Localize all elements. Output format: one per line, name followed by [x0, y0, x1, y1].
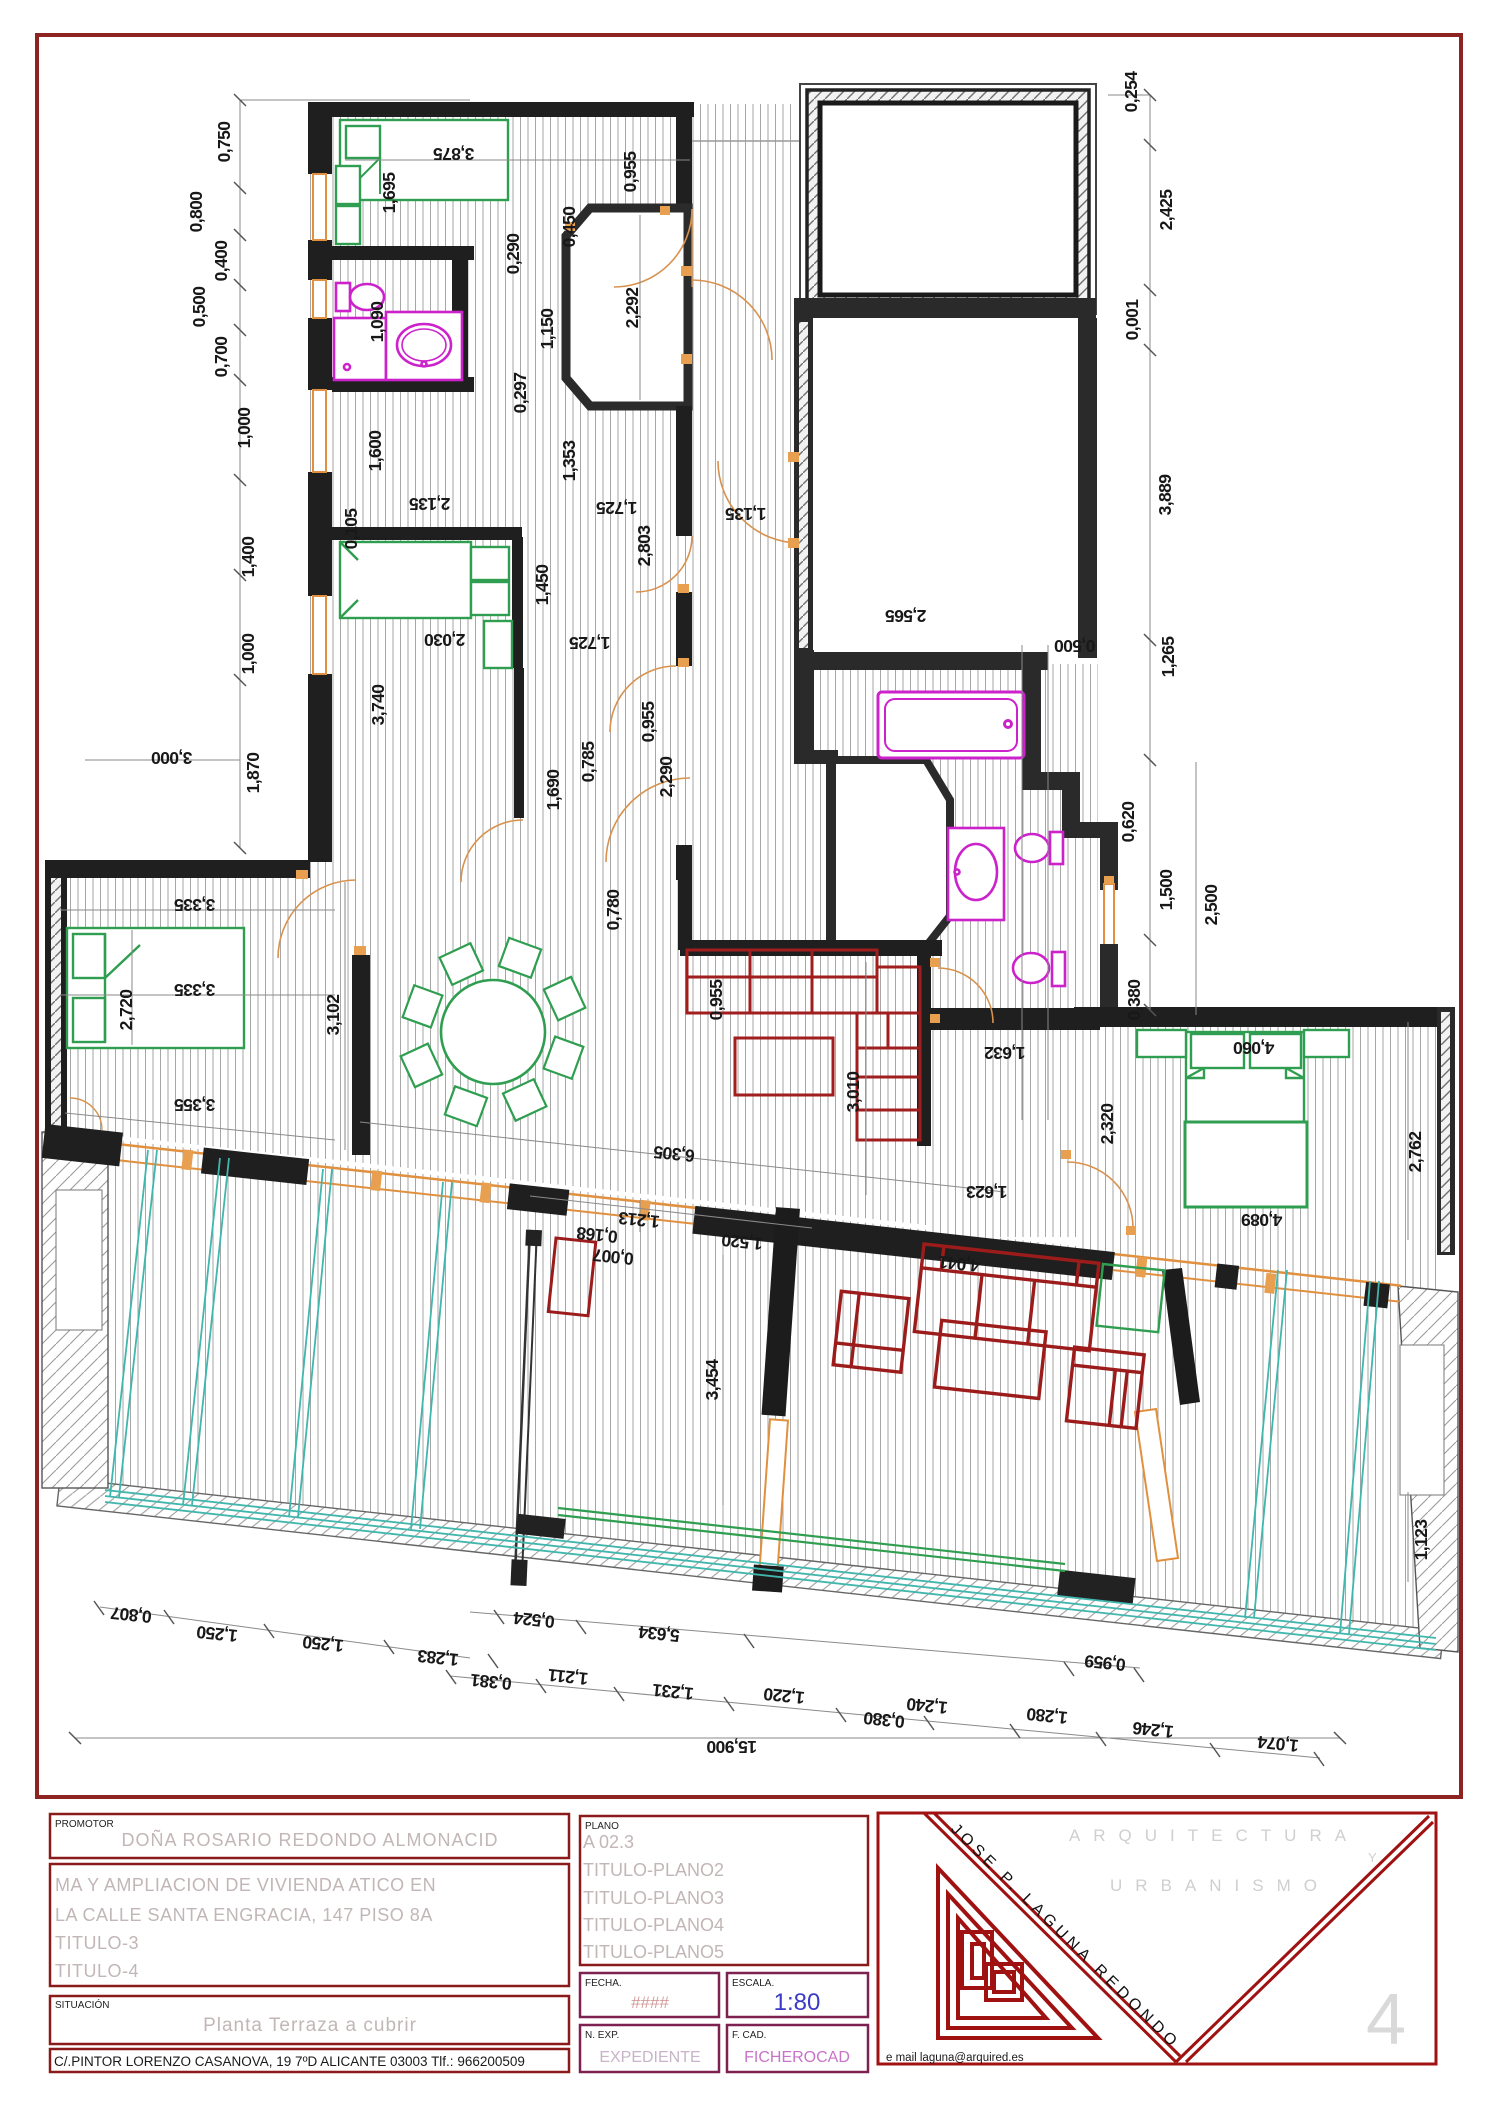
svg-text:1,632: 1,632 — [984, 1043, 1026, 1063]
svg-text:0,955: 0,955 — [638, 701, 658, 743]
svg-text:TITULO-4: TITULO-4 — [55, 1961, 139, 1981]
svg-text:0,450: 0,450 — [559, 206, 579, 248]
svg-text:0,105: 0,105 — [341, 508, 361, 550]
svg-text:0,380: 0,380 — [1124, 979, 1144, 1021]
svg-text:0,785: 0,785 — [578, 741, 598, 783]
svg-text:0,001: 0,001 — [1122, 299, 1142, 341]
svg-text:1,135: 1,135 — [725, 504, 767, 524]
svg-text:1,000: 1,000 — [238, 633, 258, 675]
svg-text:2,500: 2,500 — [1201, 884, 1221, 926]
svg-text:2,320: 2,320 — [1097, 1103, 1117, 1145]
svg-text:PROMOTOR: PROMOTOR — [55, 1819, 114, 1830]
svg-text:0,620: 0,620 — [1118, 801, 1138, 843]
svg-text:0,500: 0,500 — [1054, 636, 1096, 656]
svg-text:FICHEROCAD: FICHEROCAD — [744, 2049, 850, 2066]
svg-text:0,254: 0,254 — [1121, 71, 1141, 113]
svg-text:TITULO-PLANO3: TITULO-PLANO3 — [583, 1888, 724, 1908]
svg-text:1,123: 1,123 — [1411, 1519, 1431, 1561]
svg-text:4,060: 4,060 — [1233, 1038, 1275, 1058]
svg-text:0,780: 0,780 — [603, 889, 623, 931]
svg-text:0,500: 0,500 — [189, 286, 209, 328]
svg-text:15,900: 15,900 — [706, 1737, 757, 1757]
svg-text:0,400: 0,400 — [211, 240, 231, 282]
svg-text:1,090: 1,090 — [367, 301, 387, 343]
svg-text:1,600: 1,600 — [365, 430, 385, 472]
svg-text:0,807: 0,807 — [110, 1603, 153, 1627]
svg-text:MA Y AMPLIACION DE VIVIENDA A: MA Y AMPLIACION DE VIVIENDA ATICO EN — [55, 1875, 436, 1895]
svg-text:EXPEDIENTE: EXPEDIENTE — [599, 2049, 700, 2066]
svg-text:F. CAD.: F. CAD. — [732, 2030, 766, 2041]
svg-text:LA CALLE SANTA ENGRACIA, 147 P: LA CALLE SANTA ENGRACIA, 147 PISO 8A — [55, 1905, 433, 1925]
svg-text:Planta Terraza a cubrir: Planta Terraza a cubrir — [203, 2015, 417, 2036]
svg-text:4: 4 — [1366, 1980, 1406, 2060]
svg-text:0,955: 0,955 — [706, 979, 726, 1021]
svg-text:1,870: 1,870 — [243, 752, 263, 794]
svg-text:2,292: 2,292 — [622, 287, 642, 329]
svg-text:1,265: 1,265 — [1158, 636, 1178, 678]
svg-text:3,000: 3,000 — [151, 748, 193, 768]
svg-text:1,211: 1,211 — [547, 1665, 590, 1689]
svg-text:N. EXP.: N. EXP. — [585, 2030, 619, 2041]
svg-text:SITUACIÓN: SITUACIÓN — [55, 1998, 109, 2011]
svg-text:3,335: 3,335 — [174, 980, 216, 1000]
svg-text:1:80: 1:80 — [774, 1989, 821, 2016]
svg-text:1,450: 1,450 — [532, 564, 552, 606]
svg-text:0,007: 0,007 — [592, 1245, 635, 1269]
svg-text:####: #### — [631, 1993, 669, 2012]
svg-text:ESCALA.: ESCALA. — [732, 1978, 774, 1989]
svg-text:TITULO-PLANO4: TITULO-PLANO4 — [583, 1915, 724, 1935]
svg-text:4,089: 4,089 — [1241, 1210, 1283, 1230]
svg-text:Y: Y — [1368, 1850, 1377, 1865]
svg-text:2,803: 2,803 — [634, 525, 654, 567]
svg-text:PLANO: PLANO — [585, 1821, 619, 1832]
svg-text:TITULO-3: TITULO-3 — [55, 1933, 139, 1953]
svg-text:0,955: 0,955 — [620, 151, 640, 193]
svg-text:3,335: 3,335 — [174, 895, 216, 915]
svg-text:1,623: 1,623 — [966, 1182, 1008, 1202]
svg-text:3,889: 3,889 — [1155, 474, 1175, 516]
svg-text:1,000: 1,000 — [234, 407, 254, 449]
svg-text:TITULO-PLANO2: TITULO-PLANO2 — [583, 1860, 724, 1880]
svg-text:URBANISMO: URBANISMO — [1110, 1876, 1330, 1895]
svg-text:2,030: 2,030 — [424, 630, 466, 650]
svg-text:TITULO-PLANO5: TITULO-PLANO5 — [583, 1942, 724, 1962]
svg-text:2,720: 2,720 — [116, 989, 136, 1031]
svg-text:1,690: 1,690 — [543, 769, 563, 811]
svg-text:2,290: 2,290 — [656, 756, 676, 798]
svg-text:3,102: 3,102 — [323, 994, 343, 1036]
svg-text:3,454: 3,454 — [702, 1359, 722, 1401]
svg-text:0,750: 0,750 — [214, 121, 234, 163]
svg-text:e mail laguna@arquired.es: e mail laguna@arquired.es — [886, 2052, 1024, 2064]
svg-text:3,875: 3,875 — [433, 144, 475, 164]
svg-text:3,355: 3,355 — [174, 1095, 216, 1115]
svg-text:0,700: 0,700 — [211, 336, 231, 378]
svg-text:1,725: 1,725 — [569, 633, 611, 653]
svg-text:FECHA.: FECHA. — [585, 1978, 622, 1989]
svg-text:0,297: 0,297 — [510, 373, 530, 414]
svg-text:3,740: 3,740 — [368, 684, 388, 726]
svg-text:3,010: 3,010 — [843, 1071, 863, 1113]
svg-text:2,135: 2,135 — [409, 494, 451, 514]
svg-text:C/.PINTOR LORENZO CASANOVA,: C/.PINTOR LORENZO CASANOVA, 19 7ºD ALICA… — [54, 2054, 525, 2069]
svg-text:1,400: 1,400 — [238, 536, 258, 578]
svg-text:1,500: 1,500 — [1156, 869, 1176, 911]
svg-text:1,150: 1,150 — [537, 308, 557, 350]
svg-text:2,425: 2,425 — [1156, 189, 1176, 231]
svg-text:1,695: 1,695 — [379, 172, 399, 214]
svg-text:ARQUITECTURA: ARQUITECTURA — [1069, 1826, 1359, 1845]
svg-text:1,725: 1,725 — [596, 498, 638, 518]
svg-text:2,762: 2,762 — [1405, 1131, 1425, 1173]
svg-text:0,800: 0,800 — [186, 191, 206, 233]
svg-text:DOÑA ROSARIO REDONDO ALMONACID: DOÑA ROSARIO REDONDO ALMONACID — [121, 1829, 498, 1850]
svg-text:2,565: 2,565 — [885, 606, 927, 626]
svg-text:A 02.3: A 02.3 — [583, 1832, 634, 1852]
svg-text:1,353: 1,353 — [559, 440, 579, 482]
svg-text:0,290: 0,290 — [503, 233, 523, 275]
